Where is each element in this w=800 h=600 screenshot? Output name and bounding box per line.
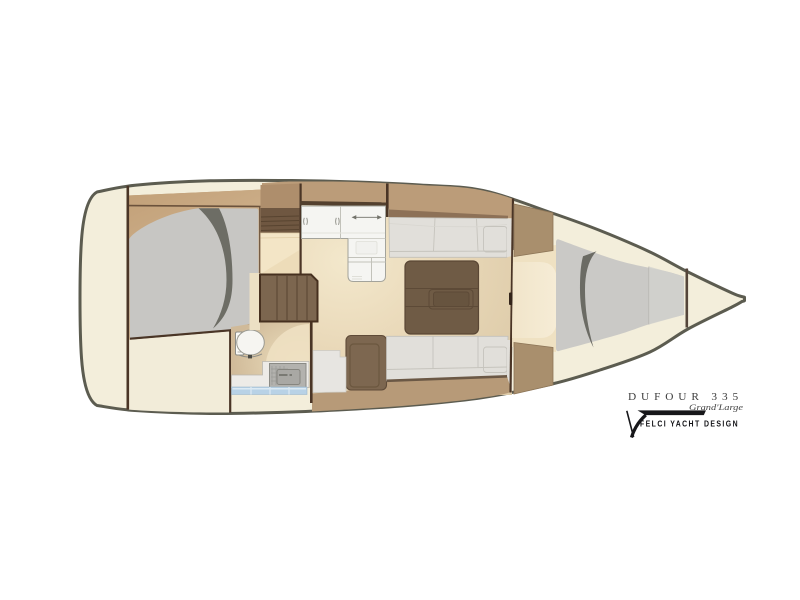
svg-text:DUFOUR 335: DUFOUR 335: [628, 392, 743, 403]
svg-text:FELCI YACHT DESIGN: FELCI YACHT DESIGN: [640, 420, 739, 429]
